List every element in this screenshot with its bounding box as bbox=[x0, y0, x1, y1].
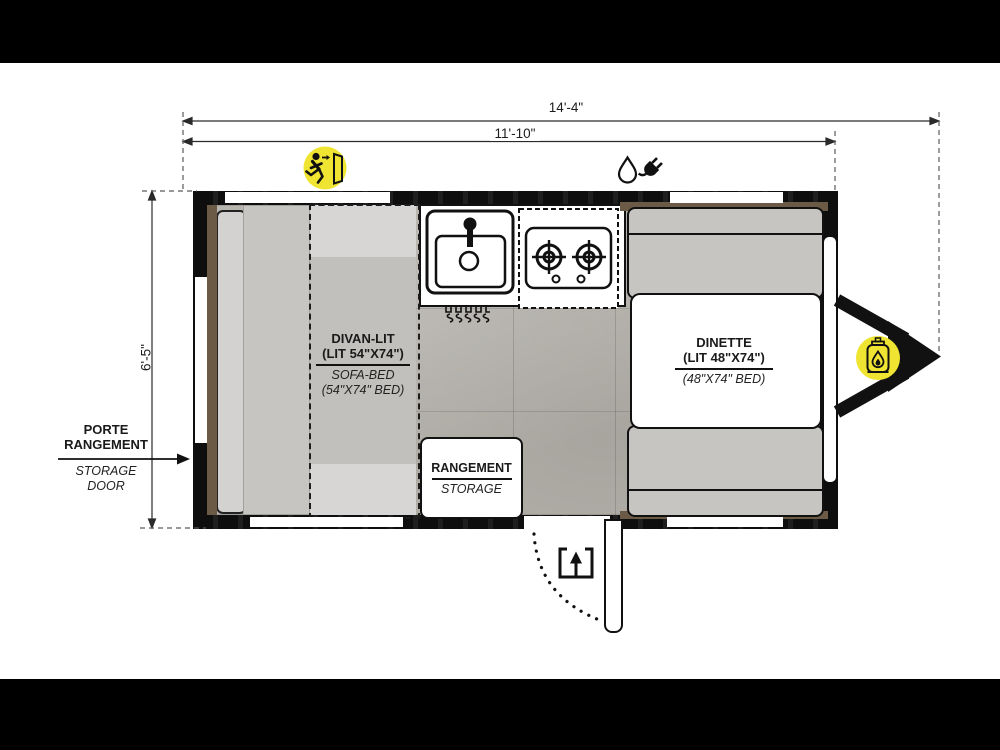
storage-door-label: PORTE RANGEMENT STORAGE DOOR bbox=[36, 422, 176, 494]
dinette-size-fr: (LIT 48"X74") bbox=[657, 350, 791, 365]
storage-door-en-line2: DOOR bbox=[36, 479, 176, 494]
dinette-title: DINETTE bbox=[657, 335, 791, 350]
door-swing-arc bbox=[534, 534, 602, 621]
sofa-headboard-wood bbox=[207, 205, 217, 515]
letterbox-top bbox=[0, 0, 1000, 63]
dinette-size-en: (48"X74" BED) bbox=[657, 372, 791, 387]
storage-door-fr-line2: RANGEMENT bbox=[36, 437, 176, 452]
dimension-width: 6'-5" bbox=[139, 331, 154, 385]
dinette-label-divider bbox=[675, 368, 773, 370]
kitchen-counter bbox=[419, 204, 626, 307]
window-right bbox=[824, 237, 836, 482]
divan-size-en: (54"X74" BED) bbox=[296, 383, 430, 398]
storage-cabinet: RANGEMENT STORAGE bbox=[420, 437, 523, 519]
window-top-right bbox=[670, 192, 783, 203]
storage-label-fr: RANGEMENT bbox=[422, 461, 521, 475]
dinette-bench-top bbox=[627, 207, 824, 299]
dinette-bench-bottom bbox=[627, 425, 824, 517]
propane-tank-icon bbox=[856, 336, 900, 380]
water-drop-icon bbox=[619, 158, 636, 183]
emergency-exit-icon bbox=[304, 147, 347, 190]
dinette-bench-top-cushion bbox=[629, 209, 822, 235]
divan-title-en: SOFA-BED bbox=[296, 368, 430, 383]
window-top-left bbox=[225, 192, 390, 203]
storage-door-opening bbox=[195, 277, 207, 443]
dinette-label: DINETTE (LIT 48"X74") (48"X74" BED) bbox=[657, 335, 791, 387]
trailer-hitch bbox=[837, 300, 941, 412]
window-bottom-left bbox=[250, 517, 403, 527]
window-bottom-right bbox=[667, 517, 783, 527]
electric-plug-icon bbox=[638, 156, 664, 182]
entry-door-leaf bbox=[604, 519, 623, 633]
storage-door-en-line1: STORAGE bbox=[36, 464, 176, 479]
floorplan-page: RANGEMENT STORAGE 14'-4" 11'-10" 6'-5" D… bbox=[0, 0, 1000, 750]
storage-label-divider bbox=[432, 478, 512, 480]
dinette-bench-bottom-cushion bbox=[629, 489, 822, 491]
divan-title-fr: DIVAN-LIT bbox=[296, 331, 430, 346]
entry-door-opening bbox=[524, 516, 610, 529]
divan-label: DIVAN-LIT (LIT 54"X74") SOFA-BED (54"X74… bbox=[296, 331, 430, 398]
divan-label-divider bbox=[316, 364, 410, 366]
dimension-overall-length: 14'-4" bbox=[516, 100, 616, 115]
storage-label-en: STORAGE bbox=[422, 482, 521, 496]
dimension-interior-length: 11'-10" bbox=[490, 126, 541, 141]
storage-door-fr-line1: PORTE bbox=[36, 422, 176, 437]
divan-size-fr: (LIT 54"X74") bbox=[296, 346, 430, 361]
entry-arrow-icon bbox=[560, 549, 592, 577]
letterbox-bottom bbox=[0, 679, 1000, 750]
